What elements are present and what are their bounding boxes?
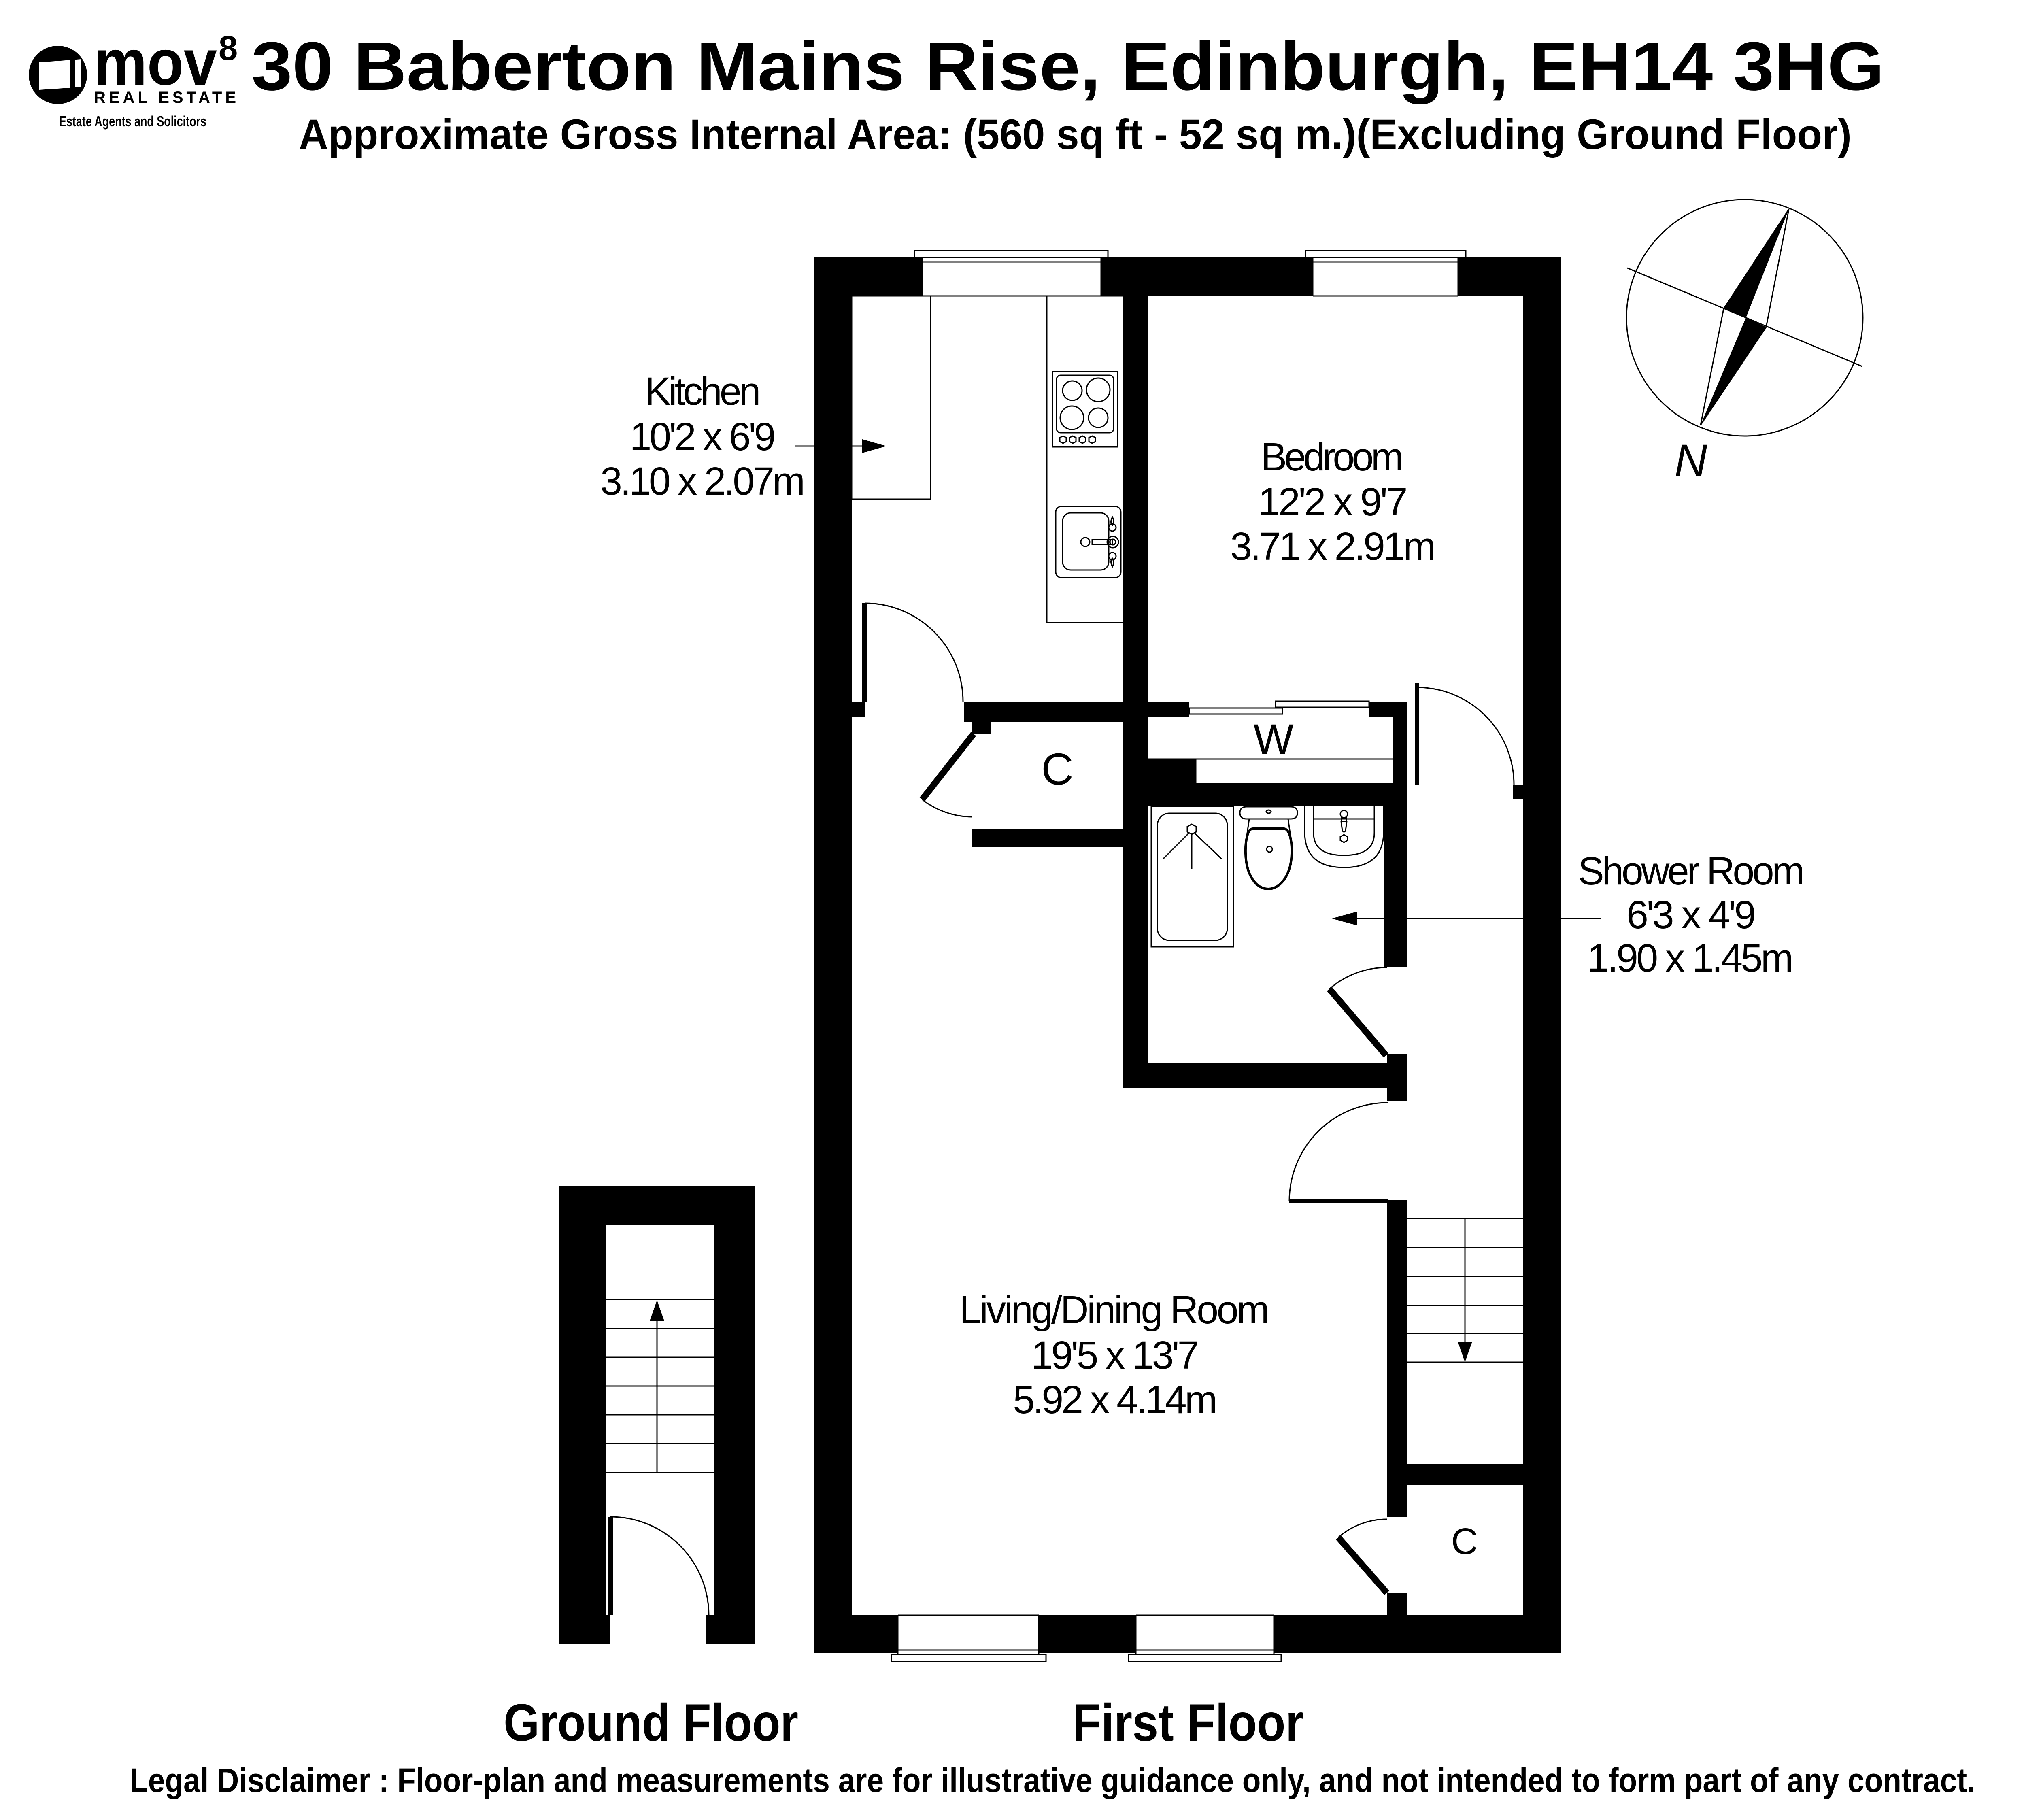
svg-text:Shower Room: Shower Room [1578, 849, 1805, 893]
svg-text:REAL ESTATE: REAL ESTATE [94, 89, 236, 106]
svg-text:Ground Floor: Ground Floor [504, 1693, 798, 1752]
svg-text:Kitchen: Kitchen [645, 369, 761, 413]
svg-text:mov: mov [94, 26, 217, 98]
svg-text:N: N [1675, 435, 1707, 486]
svg-text:Legal Disclaimer : Floor-plan: Legal Disclaimer : Floor-plan and measur… [130, 1761, 1975, 1799]
svg-text:30 Baberton Mains Rise, Edinbu: 30 Baberton Mains Rise, Edinburgh, EH14 … [251, 28, 1884, 105]
svg-text:Living/Dining Room: Living/Dining Room [959, 1288, 1269, 1332]
svg-text:C: C [1451, 1521, 1478, 1562]
svg-text:First Floor: First Floor [1073, 1693, 1304, 1752]
svg-text:5.92 x 4.14m: 5.92 x 4.14m [1013, 1378, 1218, 1422]
svg-text:6'3 x 4'9: 6'3 x 4'9 [1626, 893, 1756, 937]
svg-text:C: C [1041, 744, 1073, 794]
svg-text:12'2 x 9'7: 12'2 x 9'7 [1259, 480, 1408, 524]
svg-text:W: W [1253, 716, 1293, 763]
svg-text:Approximate Gross Internal Are: Approximate Gross Internal Area: (560 sq… [299, 111, 1852, 158]
svg-text:Estate Agents and Solicitors: Estate Agents and Solicitors [59, 113, 206, 130]
svg-text:10'2 x 6'9: 10'2 x 6'9 [630, 415, 776, 459]
svg-text:8: 8 [219, 29, 238, 68]
svg-text:1.90 x 1.45m: 1.90 x 1.45m [1588, 936, 1794, 980]
svg-text:3.71 x 2.91m: 3.71 x 2.91m [1230, 524, 1436, 568]
svg-text:3.10 x 2.07m: 3.10 x 2.07m [600, 459, 805, 503]
svg-text:19'5 x 13'7: 19'5 x 13'7 [1031, 1333, 1199, 1377]
svg-text:Bedroom: Bedroom [1261, 435, 1404, 479]
